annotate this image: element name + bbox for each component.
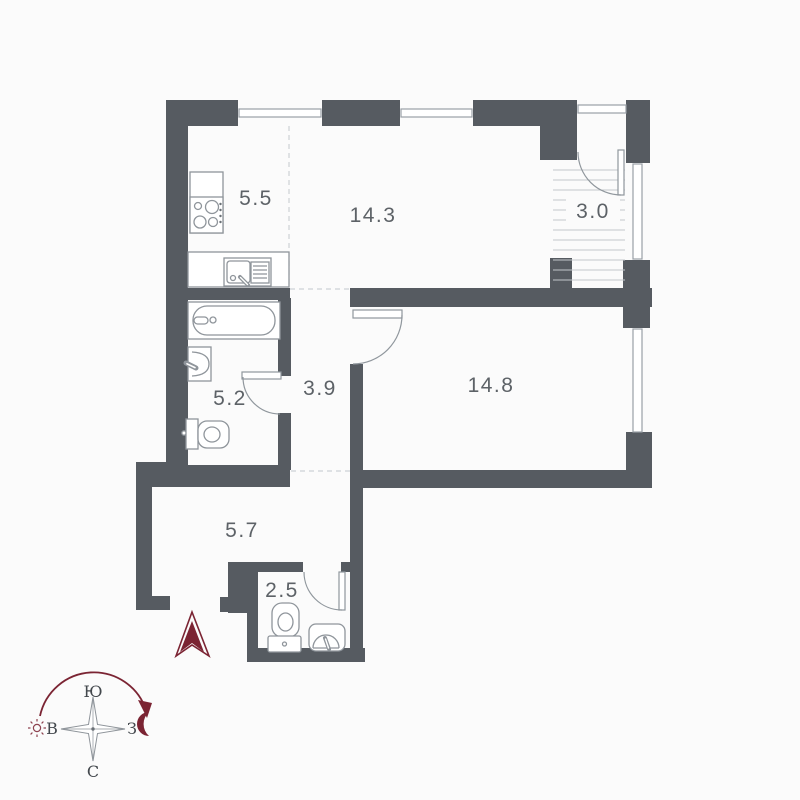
stove-icon [190,197,223,233]
door-arc-bedroom [353,315,402,364]
window-top-kitchen [239,109,321,117]
room-label-balcony: 3.0 [576,200,610,223]
compass-label-top: Ю [83,682,102,701]
floor-plan-page: 5.5 14.3 3.0 5.2 3.9 14.8 5.7 2.5 Ю С В [0,0,800,800]
stove-burner [206,201,219,214]
stove-burner [209,218,218,227]
stove-burner [194,216,206,228]
door-arc-balcony [578,152,621,195]
room-label-bathroom: 5.2 [213,387,247,410]
kitchen-sink-icon [224,258,271,286]
stove-body [190,197,223,233]
door-leaf-bathroom [242,372,281,379]
window-right-bedroom [633,329,642,432]
compass-label-right: З [127,719,137,738]
windows [239,105,642,432]
wc-fixtures [268,603,345,652]
door-leaf-bedroom [353,310,402,318]
compass-rose: Ю С В З [28,672,152,781]
wc-toilet-icon [268,603,301,652]
room-label-corridor: 5.7 [225,519,259,542]
toilet-bowl-inner [204,427,220,442]
room-label-bedroom: 14.8 [468,374,515,397]
wc-toilet-bowl-inner [278,613,293,631]
toilet-tank [186,419,198,449]
window-right-balcony [633,164,642,259]
door-bathroom [242,372,281,414]
door-bedroom [353,310,402,364]
door-leaf-balcony [618,150,624,195]
wc-sink-icon [309,624,345,651]
door-arc-bathroom [243,377,280,414]
kitchen-sink-drainer [251,262,269,283]
zone-dashed-lines [289,126,350,471]
window-top-balcony [578,105,626,113]
compass-star [61,697,125,761]
room-label-wc: 2.5 [265,579,299,602]
floor-plan-svg: 5.5 14.3 3.0 5.2 3.9 14.8 5.7 2.5 Ю С В [0,0,800,800]
room-label-kitchen: 5.5 [239,187,273,210]
room-label-living: 14.3 [350,204,397,227]
compass-center-dot [91,727,94,730]
door-balcony [578,150,624,195]
room-label-hall: 3.9 [303,377,337,400]
bathtub-icon [188,302,280,339]
bathtub-faucet [194,317,208,324]
compass-label-bottom: С [87,762,99,781]
bathtub-drain [210,317,216,323]
window-top-living [401,109,472,117]
room-labels: 5.5 14.3 3.0 5.2 3.9 14.8 5.7 2.5 [213,187,610,602]
door-wc [304,572,345,610]
door-arc-wc [304,572,342,610]
door-leaf-wc [339,572,345,610]
wc-toilet-button [283,642,287,646]
kitchen-sink-drain [231,276,236,281]
bathroom-toilet-icon [182,419,229,449]
compass-label-left: В [46,719,58,738]
sun-icon [28,719,46,737]
stove-burner [195,203,202,210]
bathroom-sink-icon [186,347,211,381]
entrance-arrow-icon [176,612,209,656]
